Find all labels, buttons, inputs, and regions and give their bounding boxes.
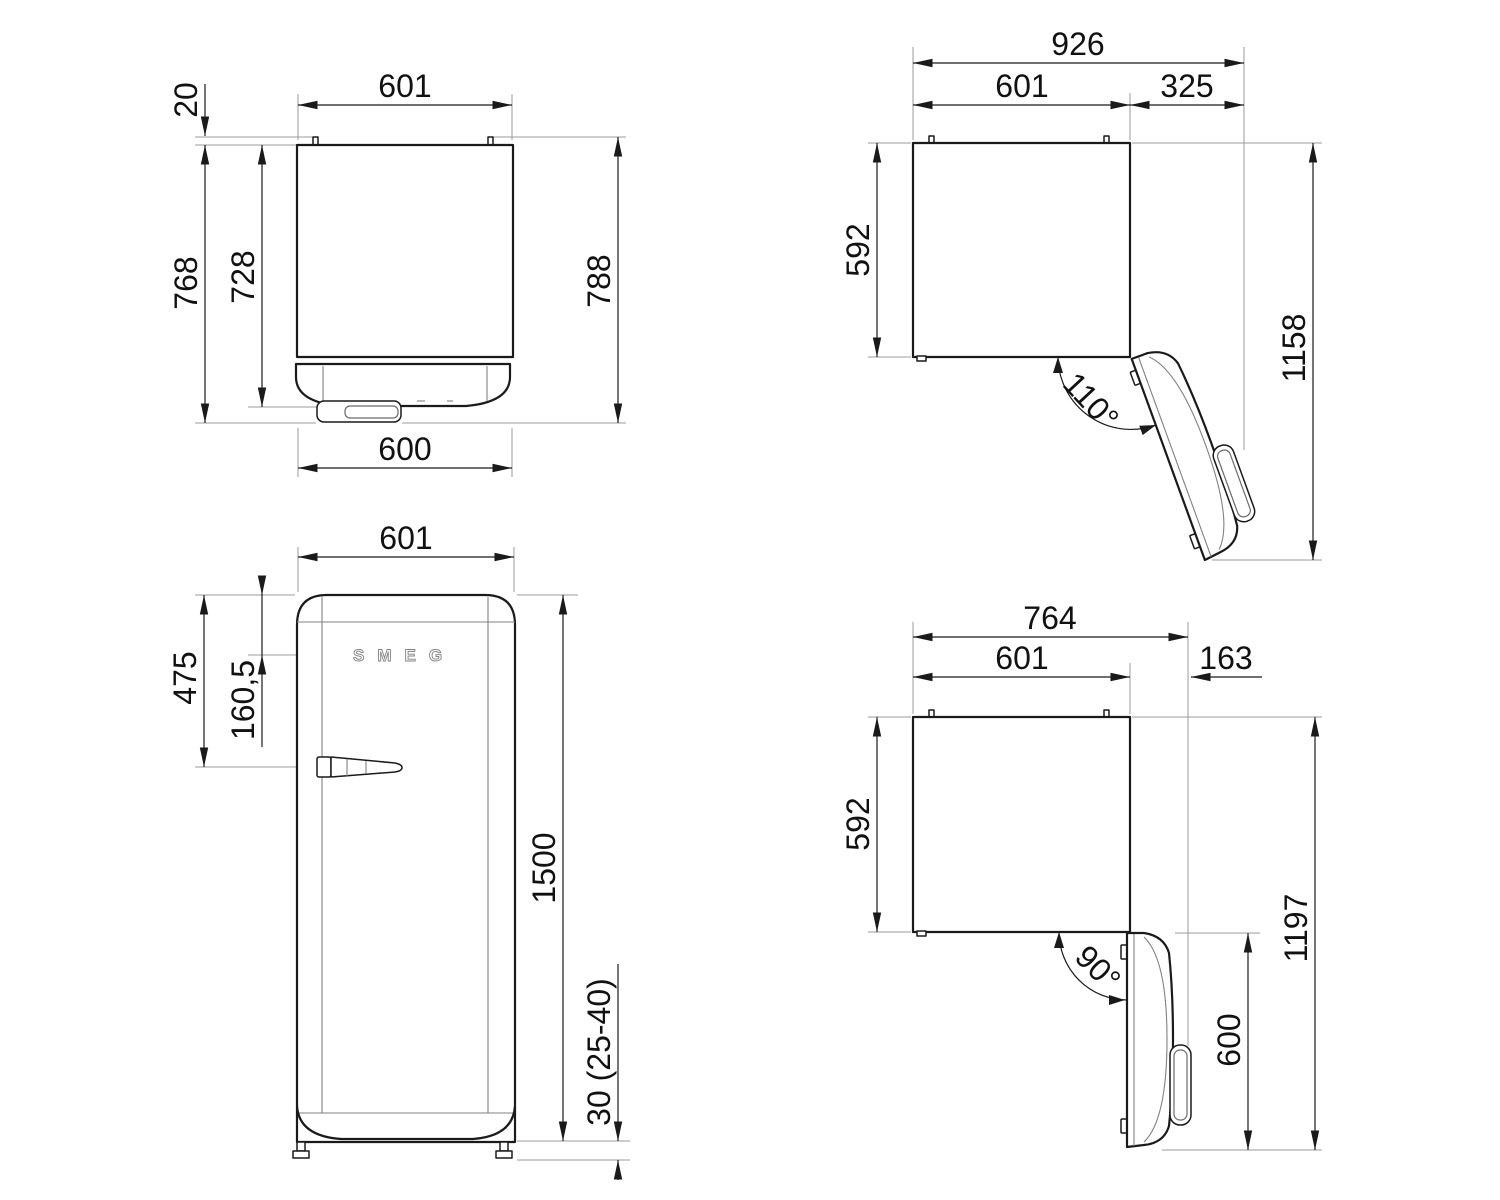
view-front: SMEG 601 475 160,5 1500 [167, 520, 630, 1180]
dim-depth-768: 768 [168, 145, 205, 423]
dim-label: 1158 [1276, 314, 1312, 383]
dim-door-width-600: 600 [298, 431, 512, 468]
dim-feet-30-25-40: 30 (25-40) [581, 964, 618, 1180]
dim-overall-width-926: 926 [913, 26, 1244, 63]
view-top-door-open-90: 90° 764 601 163 592 1197 600 [840, 600, 1322, 1150]
dim-top-to-logo-160-5: 160,5 [225, 577, 262, 747]
dim-overall-width-764: 764 [913, 600, 1188, 637]
arc-arrow [1054, 932, 1064, 948]
refrigerator-dimension-drawing: 601 20 768 728 788 600 [0, 0, 1500, 1200]
door-top-profile-closed [296, 364, 510, 406]
dim-door-width-600: 600 [1211, 933, 1248, 1150]
dim-label: 926 [1051, 26, 1104, 62]
dim-label: 601 [995, 68, 1048, 104]
dim-overall-depth-1158: 1158 [1276, 143, 1313, 560]
dim-width-601: 601 [913, 640, 1130, 677]
dim-label: 601 [379, 520, 432, 556]
adjustable-feet [293, 1142, 512, 1158]
dim-label: 1500 [526, 832, 562, 903]
foot-mark [917, 931, 926, 936]
angle-label: 110° [1056, 365, 1126, 436]
dim-label: 600 [378, 431, 431, 467]
dim-depth-788: 788 [581, 137, 618, 423]
dim-height-1500: 1500 [526, 595, 563, 1141]
dim-label: 592 [840, 797, 876, 850]
dim-clearance-325: 325 [1130, 68, 1244, 105]
handle-top-profile [317, 401, 401, 422]
dim-clearance-163: 163 [1191, 640, 1262, 677]
dim-spacer-20: 20 [168, 82, 205, 136]
dim-label: 160,5 [225, 660, 261, 740]
dim-depth-592: 592 [840, 143, 877, 357]
dim-width-601: 601 [298, 520, 514, 557]
dim-label: 600 [1211, 1013, 1247, 1066]
dim-depth-728: 728 [225, 145, 262, 407]
dim-label: 325 [1160, 68, 1213, 104]
dim-label: 20 [168, 82, 204, 118]
dim-label: 601 [378, 68, 431, 104]
dim-label: 788 [581, 254, 617, 307]
dim-depth-592: 592 [840, 717, 877, 932]
dim-label: 30 (25-40) [581, 978, 617, 1126]
dim-width-601: 601 [298, 68, 512, 105]
drawing-canvas: 601 20 768 728 788 600 [0, 0, 1500, 1200]
foot-mark [917, 356, 926, 361]
dim-label: 592 [840, 223, 876, 276]
dim-label: 601 [995, 640, 1048, 676]
brand-logo: SMEG [353, 646, 455, 665]
dim-label: 768 [168, 256, 204, 309]
dim-label: 163 [1199, 640, 1252, 676]
arc-arrow [1109, 995, 1125, 1005]
opening-angle-90: 90° [1054, 932, 1128, 1005]
cabinet-body-top-view [297, 145, 513, 357]
cabinet-body-front-view [297, 595, 515, 1142]
dim-label: 475 [167, 651, 203, 704]
view-top-door-closed: 601 20 768 728 788 600 [168, 68, 626, 477]
view-top-door-open-110: 110° 926 601 325 592 1158 [840, 26, 1322, 562]
dim-top-to-handle-475: 475 [167, 595, 204, 767]
angle-label: 90° [1068, 938, 1128, 998]
cabinet-body-top-view [913, 717, 1130, 932]
dim-label: 1197 [1278, 894, 1314, 963]
cabinet-body-top-view [913, 143, 1130, 357]
dim-label: 728 [225, 250, 261, 303]
dim-width-601: 601 [913, 68, 1130, 105]
dim-label: 764 [1023, 600, 1076, 636]
arc-arrow [1053, 357, 1063, 373]
dim-overall-depth-1197: 1197 [1278, 717, 1315, 1150]
